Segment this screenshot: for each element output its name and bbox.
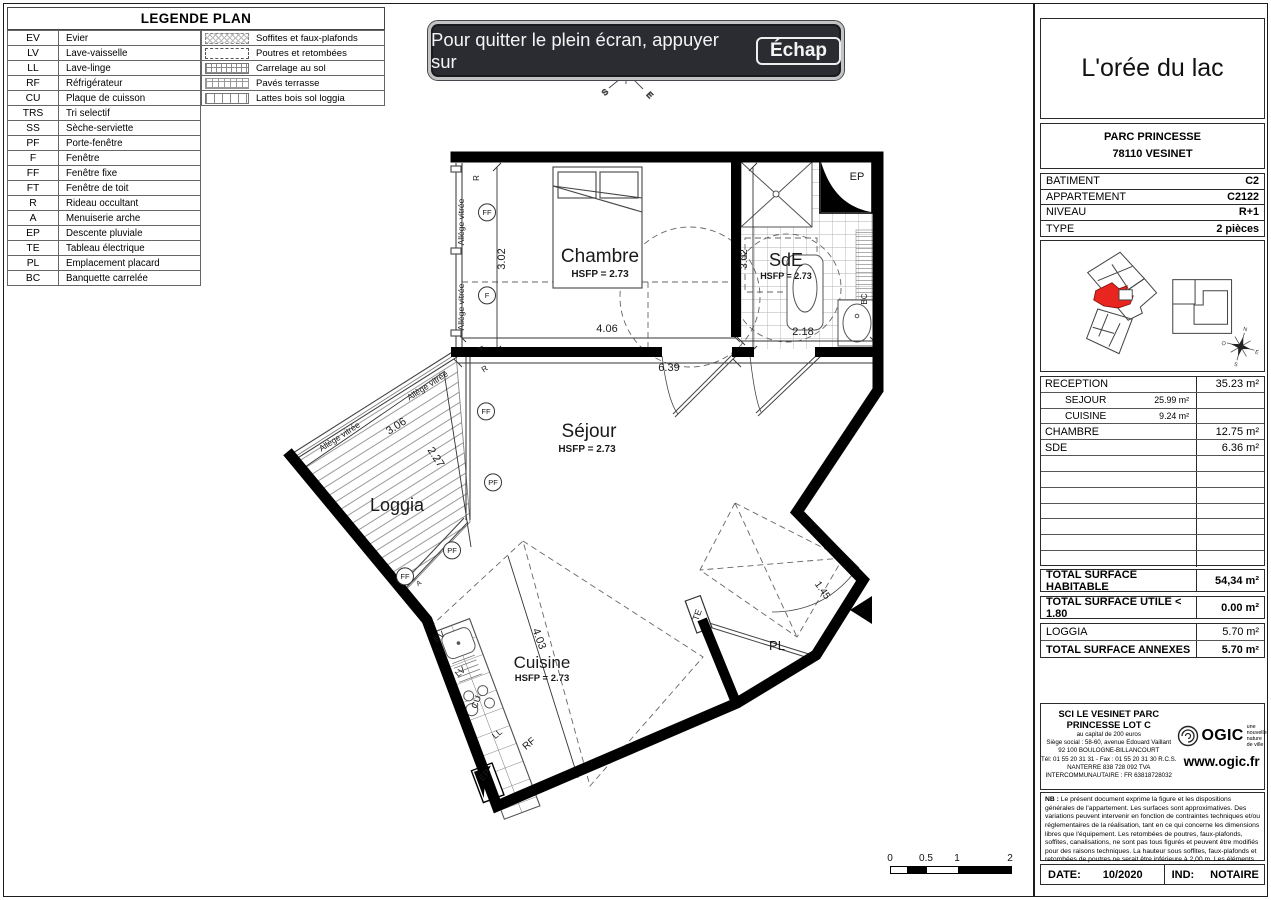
annex-table: LOGGIA5.70 m²TOTAL SURFACE ANNEXES5.70 m… [1040,623,1265,658]
legend-pattern-label: Lattes bois sol loggia [256,93,345,104]
date-value: 10/2020 [1103,869,1143,881]
legend-row: CUPlaque de cuisson [7,90,201,106]
surface-table: RECEPTION35.23 m²SEJOUR25.99 m²CUISINE9.… [1040,376,1265,566]
legend-row: TRSTri selectif [7,105,201,121]
annex-row: LOGGIA5.70 m² [1041,624,1264,641]
info-label: NIVEAU [1046,206,1086,218]
surface-row: CHAMBRE12.75 m² [1041,424,1264,440]
plan-label: Séjour [562,421,618,442]
plan-label: PF [447,546,457,555]
legend-pattern-row: Pavés terrasse [201,75,385,91]
plan-label: F [485,291,490,300]
surface-value [1197,551,1264,567]
legend-abbr: TRS [8,106,59,120]
legend-abbr: A [8,211,59,225]
surface-label: RECEPTION [1045,378,1108,390]
surface-row [1041,472,1264,488]
legend-abbr: SS [8,121,59,135]
fullscreen-exit-banner: Pour quitter le plein écran, appuyer sur… [428,21,844,80]
ep-corner-box [820,161,872,213]
legend-abbr: FT [8,181,59,195]
legend-pattern-label: Carrelage au sol [256,63,326,74]
legend-abbr: RF [8,76,59,90]
plan-label: 6.39 [658,362,679,374]
scale-bar-graphic [890,866,1012,874]
annex-row: TOTAL SURFACE ANNEXES5.70 m² [1041,641,1264,658]
loggia-slat-floor [293,354,470,592]
plan-label: SdE [769,250,803,270]
legend-abbreviations: EVEvierLVLave-vaisselleLLLave-lingeRFRéf… [7,31,201,286]
legend-pattern-row: Lattes bois sol loggia [201,90,385,106]
surface-row [1041,456,1264,472]
date-label: DATE: [1048,869,1081,881]
surface-subvalue: 25.99 m² [1154,395,1192,405]
legend-label: Fenêtre [59,151,200,165]
legend-row: FTFenêtre de toit [7,180,201,196]
legend-abbr: PL [8,256,59,270]
compass-letter-s: S [600,87,610,97]
company-detail-line: au capital de 200 euros [1041,731,1177,739]
total-habitable-box: TOTAL SURFACE HABITABLE 54,34 m² [1040,569,1265,592]
ind-value: NOTAIRE [1210,869,1259,881]
ogic-logo-icon [1177,725,1199,747]
carrelage-pattern-swatch [205,63,249,74]
plan-label: Cuisine [514,653,571,672]
legend-label: Fenêtre fixe [59,166,200,180]
legend-row: LLLave-linge [7,60,201,76]
legend-abbr: LV [8,46,59,60]
legend-label: Réfrigérateur [59,76,200,90]
keyplan-compass-icon: N E S O [1216,322,1264,371]
legend-abbr: EP [8,226,59,240]
company-detail-line: INTERCOMMUNAUTAIRE : FR 63818728032 [1041,772,1177,780]
surface-label: SDE [1045,442,1067,454]
legend-pattern-row: Soffites et faux-plafonds [201,30,385,46]
legend-label: Lave-linge [59,61,200,75]
legend-row: EVEvier [7,30,201,46]
legend-label: Banquette carrelée [59,271,200,285]
info-row-niveau: NIVEAUR+1 [1041,205,1264,221]
company-detail-line: NANTERRE 838 728 092 TVA [1041,764,1177,772]
info-row-type: TYPE2 pièces [1041,221,1264,237]
scale-label-05: 0.5 [919,853,933,864]
keyplan-core [1119,290,1132,300]
legend-patterns: Soffites et faux-plafondsPoutres et reto… [201,31,385,106]
plan-label: 4.03 [530,627,549,651]
total-habitable-label: TOTAL SURFACE HABITABLE [1041,570,1197,591]
ogic-logo-text: OGIC [1202,727,1244,745]
surface-value [1197,472,1264,487]
plan-label: BC [860,293,869,304]
plan-label: PL [769,638,785,653]
plan-label: PF [488,478,498,487]
scale-label-0: 0 [887,853,893,864]
legend-label: Plaque de cuisson [59,91,200,105]
banner-text: Pour quitter le plein écran, appuyer sur [431,29,742,73]
surface-row [1041,551,1264,567]
plan-label: 1.45 [812,579,832,602]
surface-value: 12.75 m² [1197,424,1264,439]
legend-pattern-row: Carrelage au sol [201,60,385,76]
scale-label-1: 1 [954,853,960,864]
legend-row: RFRéfrigérateur [7,75,201,91]
plan-label: EP [850,171,865,183]
project-title-box: L'orée du lac [1040,18,1265,119]
plan-label: 3.02 [739,249,750,269]
developer-identity: SCI LE VESINET PARC PRINCESSE LOT C au c… [1041,704,1177,789]
legend-label: Fenêtre de toit [59,181,200,195]
svg-text:E: E [1254,350,1259,357]
legend-label: Lave-vaisselle [59,46,200,60]
plan-label: R [472,175,481,181]
total-habitable-value: 54,34 m² [1197,575,1264,587]
surface-value [1197,535,1264,550]
info-label: APPARTEMENT [1046,191,1126,203]
plan-label: 2.18 [792,326,813,338]
legend-abbr: LL [8,61,59,75]
legend-row: SSSèche-serviette [7,120,201,136]
company-name-line1: SCI LE VESINET PARC [1041,709,1177,720]
lattes-pattern-swatch [205,93,249,104]
compass-letter-e: E [645,90,655,100]
surface-label: SEJOUR [1045,395,1106,406]
info-value: C2 [1245,175,1259,187]
info-label: TYPE [1046,223,1074,235]
ogic-website-link[interactable]: www.ogic.fr [1184,754,1260,769]
legend-label: Tableau électrique [59,241,200,255]
legend-row: TETableau électrique [7,240,201,256]
scale-bar: 0 0.5 1 2 [884,853,1016,879]
company-detail-line: Siège social : 58-60, avenue Edouard Vai… [1041,739,1177,747]
legend-pattern-label: Poutres et retombées [256,48,347,59]
total-utile-label: TOTAL SURFACE UTILE < 1.80 [1041,597,1197,618]
surface-value [1197,519,1264,534]
info-label: BATIMENT [1046,175,1100,187]
ind-label: IND: [1172,869,1195,881]
plan-label: Loggia [370,495,425,515]
total-utile-value: 0.00 m² [1197,602,1264,614]
plan-label: FF [482,208,492,217]
keyplan-box: N E S O [1040,240,1265,372]
shower [741,162,812,227]
surface-value [1197,488,1264,503]
info-value: R+1 [1239,206,1259,218]
legend-row: PFPorte-fenêtre [7,135,201,151]
legend-row: BCBanquette carrelée [7,270,201,286]
surface-value [1197,504,1264,519]
legend-label: Sèche-serviette [59,121,200,135]
titleblock-divider [1033,3,1035,897]
company-detail-line: 92 100 BOULOGNE-BILLANCOURT [1041,747,1177,755]
nb-label: NB : [1045,796,1059,803]
plan-label: FF [481,407,491,416]
legend-label: Tri selectif [59,106,200,120]
plan-label: A [415,579,423,588]
legend-row: LVLave-vaisselle [7,45,201,61]
surface-row [1041,488,1264,504]
poutres-pattern-swatch [205,48,249,59]
wall-pier [452,347,468,357]
plan-label: RF [521,736,538,753]
keyplan-building-right [1173,280,1232,334]
annex-label: TOTAL SURFACE ANNEXES [1041,641,1197,658]
legend-row: AMenuiserie arche [7,210,201,226]
surface-row [1041,519,1264,535]
surface-subvalue: 9.24 m² [1159,411,1192,421]
annex-label: LOGGIA [1041,624,1197,640]
legend-abbr: TE [8,241,59,255]
annex-value: 5.70 m² [1197,626,1264,638]
plan-label: HSFP = 2.73 [558,444,616,455]
svg-text:O: O [1221,341,1227,348]
plan-label: R [480,363,490,374]
surface-label: CUISINE [1045,411,1106,422]
info-row-appartement: APPARTEMENTC2122 [1041,190,1264,206]
info-value: C2122 [1227,191,1259,203]
washbasin [838,300,876,346]
nb-note: NB : Le présent document exprime la figu… [1040,792,1265,861]
legend-pattern-label: Pavés terrasse [256,78,319,89]
legend-row: PLEmplacement placard [7,255,201,271]
address-line1: PARC PRINCESSE [1104,129,1201,146]
surface-row: CUISINE9.24 m² [1041,409,1264,425]
surface-label: CHAMBRE [1045,426,1099,438]
address-box: PARC PRINCESSE 78110 VESINET [1040,123,1265,169]
legend-label: Descente pluviale [59,226,200,240]
plan-label: Allège vitrée [456,198,466,245]
legend-panel: LEGENDE PLAN EVEvierLVLave-vaisselleLLLa… [7,7,385,30]
plan-label: A [478,345,485,350]
legend-abbr: F [8,151,59,165]
total-utile-box: TOTAL SURFACE UTILE < 1.80 0.00 m² [1040,596,1265,619]
ogic-tagline: unenouvellenaturede ville [1247,724,1267,749]
surface-row [1041,504,1264,520]
escape-key-badge: Échap [756,37,841,65]
surface-row: SDE6.36 m² [1041,440,1264,456]
legend-abbr: BC [8,271,59,285]
keyplan-map: N E S O [1041,241,1264,371]
surface-row: SEJOUR25.99 m² [1041,393,1264,409]
address-line2: 78110 VESINET [1112,146,1192,163]
info-row-batiment: BATIMENTC2 [1041,174,1264,190]
surface-value: 35.23 m² [1197,377,1264,392]
company-name-line2: PRINCESSE LOT C [1041,720,1177,731]
legend-pattern-row: Poutres et retombées [201,45,385,61]
plan-label: Allège vitrée [456,283,466,330]
scale-label-2: 2 [1007,853,1013,864]
legend-row: RRideau occultant [7,195,201,211]
info-value: 2 pièces [1216,223,1259,235]
plan-label: HSFP = 2.73 [571,269,629,280]
soffites-pattern-swatch [205,33,249,44]
plan-label: HSFP = 2.73 [760,271,812,281]
compass-icon: S E [600,77,655,100]
svg-text:N: N [1242,326,1247,333]
legend-row: EPDescente pluviale [7,225,201,241]
legend-pattern-label: Soffites et faux-plafonds [256,33,358,44]
legend-label: Evier [59,31,200,45]
surface-row: RECEPTION35.23 m² [1041,377,1264,393]
plan-label: 3.02 [496,248,508,269]
ogic-tagline-line: de ville [1247,742,1267,748]
legend-title: LEGENDE PLAN [7,7,385,30]
unit-info-table: BATIMENTC2APPARTEMENTC2122NIVEAUR+1TYPE2… [1040,173,1265,237]
legend-abbr: R [8,196,59,210]
surface-value [1197,456,1264,471]
legend-abbr: CU [8,91,59,105]
plan-sheet: S E ChambreHSFP = 2.73SdEHSFP = 2.73Séjo… [0,0,1271,900]
plan-label: FF [400,572,410,581]
surface-row [1041,535,1264,551]
legend-label: Menuiserie arche [59,211,200,225]
paves-pattern-swatch [205,78,249,89]
project-title: L'orée du lac [1081,54,1223,83]
annex-value: 5.70 m² [1197,644,1264,656]
legend-label: Porte-fenêtre [59,136,200,150]
plan-label: HSFP = 2.73 [515,673,569,684]
legend-label: Emplacement placard [59,256,200,270]
date-row: DATE: 10/2020 IND: NOTAIRE [1040,864,1265,885]
legend-abbr: PF [8,136,59,150]
plan-label: 4.06 [596,323,617,335]
company-detail-line: Tél: 01 55 20 31 31 - Fax : 01 55 20 31 … [1041,756,1177,764]
plan-label: Chambre [561,246,639,267]
legend-label: Rideau occultant [59,196,200,210]
legend-abbr: FF [8,166,59,180]
surface-value: 6.36 m² [1197,440,1264,455]
legend-row: FFenêtre [7,150,201,166]
svg-text:S: S [1233,362,1238,369]
developer-box: SCI LE VESINET PARC PRINCESSE LOT C au c… [1040,703,1265,790]
legend-row: FFFenêtre fixe [7,165,201,181]
legend-abbr: EV [8,31,59,45]
